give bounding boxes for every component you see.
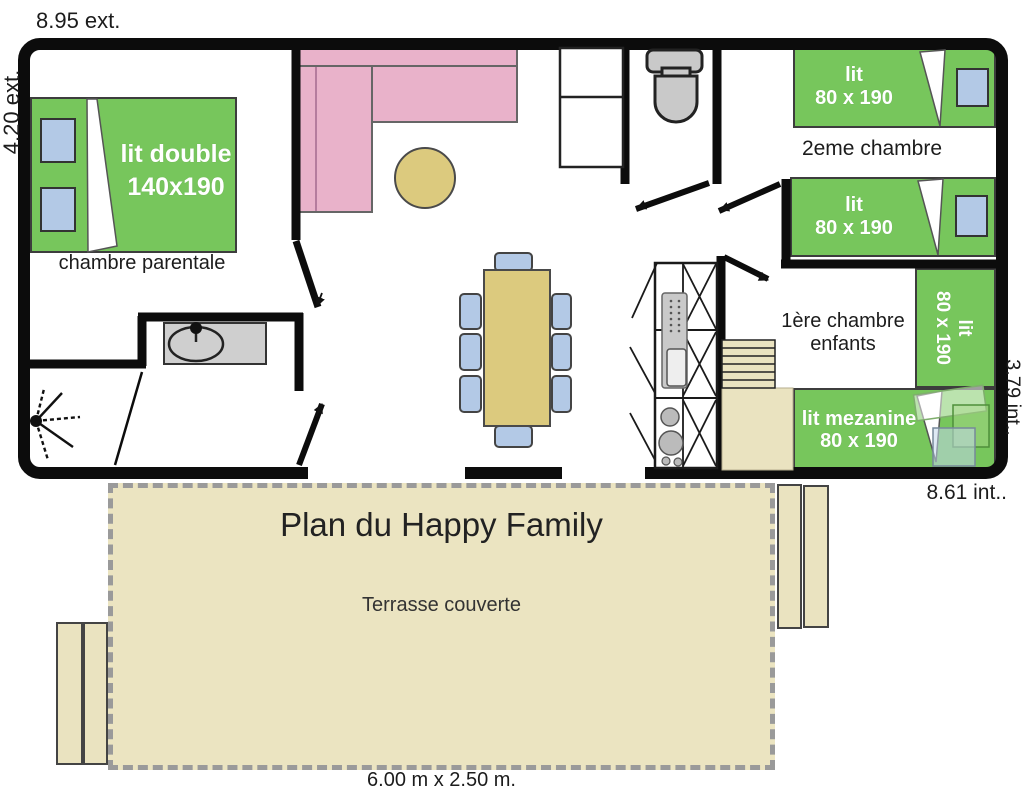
- first-bedroom-label: 1ère chambre enfants: [762, 310, 924, 356]
- double-bed-label-line2: 140x190: [115, 171, 237, 204]
- double-bed-pillow-top: [40, 118, 76, 163]
- sofa-seat: [371, 65, 518, 123]
- terrace-bench-left-1: [56, 622, 83, 765]
- double-bed-label-line1: lit double: [115, 138, 237, 171]
- terrace-bench-right-2: [803, 485, 829, 628]
- terrace-bench-left-2: [83, 622, 108, 765]
- single-bed-2-label: lit 80 x 190: [793, 194, 915, 240]
- first-bedroom-label-line1: 1ère chambre: [762, 310, 924, 333]
- dining-chair-right-3: [551, 375, 572, 413]
- oven-icon: [662, 293, 687, 388]
- single-bed-1-pillow: [956, 68, 989, 107]
- terrace-opening-left: [308, 461, 465, 482]
- single-bed-vertical-label-line2: 80 x 190: [931, 278, 953, 378]
- single-bed-vertical-label: lit 80 x 190: [931, 278, 975, 378]
- terrace-label: Terrasse couverte: [108, 594, 775, 617]
- kitchen-block: [630, 263, 717, 468]
- mezzanine-bed-label-line1: lit mezanine: [795, 408, 923, 430]
- floor-plan: 8.95 ext. 4.20 ext. 3.79 int.. 8.61 int.…: [0, 0, 1024, 793]
- plan-title: Plan du Happy Family: [108, 506, 775, 544]
- sink-bowl-small: [661, 408, 679, 426]
- double-bed-label: lit double 140x190: [115, 138, 237, 204]
- dining-table: [483, 269, 551, 427]
- mezzanine-bed-label-line2: 80 x 190: [795, 430, 923, 452]
- dimension-right: 3.79 int..: [1001, 348, 1024, 448]
- dining-chair-left-2: [459, 333, 482, 371]
- round-side-table: [394, 147, 456, 209]
- terrace-dimension: 6.00 m x 2.50 m.: [108, 769, 775, 792]
- first-bedroom-label-line2: enfants: [762, 333, 924, 356]
- single-bed-1-label-line2: 80 x 190: [793, 87, 915, 110]
- dining-chair-right-1: [551, 293, 572, 330]
- sink-bowl-large: [659, 431, 683, 455]
- cabinet: [560, 48, 623, 167]
- second-bedroom-label: 2eme chambre: [772, 137, 972, 161]
- terrace-opening-right: [562, 461, 645, 482]
- single-bed-2-label-line2: 80 x 190: [793, 217, 915, 240]
- single-bed-1-label-line1: lit: [793, 64, 915, 87]
- shower-icon: [30, 389, 80, 460]
- dining-chair-right-2: [551, 333, 572, 371]
- sofa-chaise: [298, 65, 373, 213]
- sink-counter: [163, 322, 267, 365]
- mezzanine-bed-label: lit mezanine 80 x 190: [795, 408, 923, 452]
- toilet-icon: [647, 50, 702, 122]
- stairs: [722, 340, 793, 470]
- dimension-left: 4.20 ext.: [0, 67, 25, 157]
- dimension-bottom-right: 8.61 int..: [895, 481, 1007, 505]
- parental-room-label: chambre parentale: [36, 252, 248, 275]
- terrace-bench-right-1: [777, 484, 802, 629]
- single-bed-2-pillow: [955, 195, 988, 237]
- dining-chair-left-1: [459, 293, 482, 330]
- single-bed-2-label-line1: lit: [793, 194, 915, 217]
- double-bed-pillow-bottom: [40, 187, 76, 232]
- sofa-backrest: [298, 46, 518, 67]
- single-bed-1-label: lit 80 x 190: [793, 64, 915, 110]
- single-bed-vertical-label-line1: lit: [953, 278, 975, 378]
- dining-chair-left-3: [459, 375, 482, 413]
- dimension-top: 8.95 ext.: [36, 8, 120, 34]
- dining-chair-bottom: [494, 425, 533, 448]
